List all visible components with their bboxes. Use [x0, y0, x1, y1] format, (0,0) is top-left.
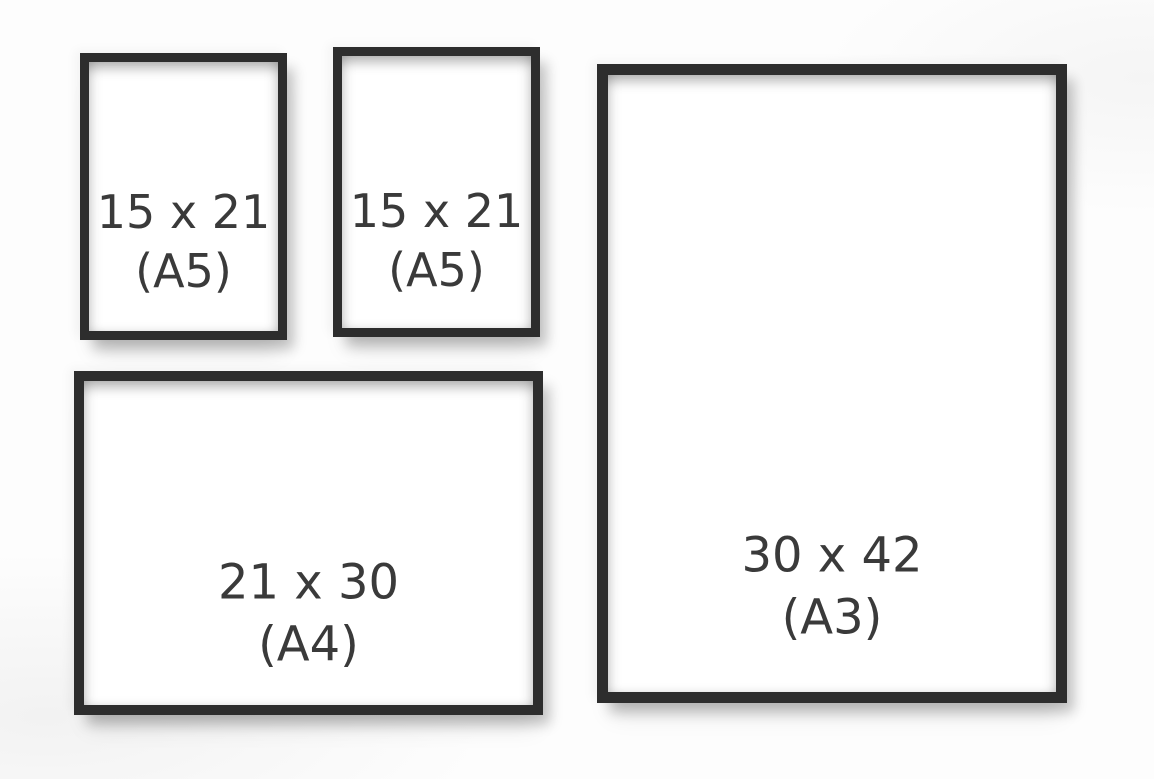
- format-label: (A5): [342, 241, 531, 300]
- frame-label: 15 x 21 (A5): [342, 182, 531, 300]
- size-label: 21 x 30: [84, 553, 533, 614]
- format-label: (A5): [89, 242, 278, 301]
- frame-label: 21 x 30 (A4): [84, 553, 533, 676]
- frame-label: 30 x 42 (A3): [608, 526, 1056, 649]
- size-label: 15 x 21: [342, 182, 531, 241]
- size-label: 30 x 42: [608, 526, 1056, 587]
- format-label: (A4): [84, 614, 533, 675]
- frame-size-diagram: 15 x 21 (A5) 15 x 21 (A5) 21 x 30 (A4) 3…: [0, 0, 1154, 779]
- paper: 15 x 21 (A5): [89, 62, 278, 331]
- paper: 21 x 30 (A4): [84, 381, 533, 705]
- paper: 30 x 42 (A3): [608, 75, 1056, 692]
- frame-label: 15 x 21 (A5): [89, 183, 278, 301]
- frame-a3: 30 x 42 (A3): [597, 64, 1067, 703]
- paper: 15 x 21 (A5): [342, 56, 531, 328]
- frame-a5-right: 15 x 21 (A5): [333, 47, 540, 337]
- format-label: (A3): [608, 587, 1056, 648]
- frame-a4: 21 x 30 (A4): [74, 371, 543, 715]
- frame-a5-left: 15 x 21 (A5): [80, 53, 287, 340]
- size-label: 15 x 21: [89, 183, 278, 242]
